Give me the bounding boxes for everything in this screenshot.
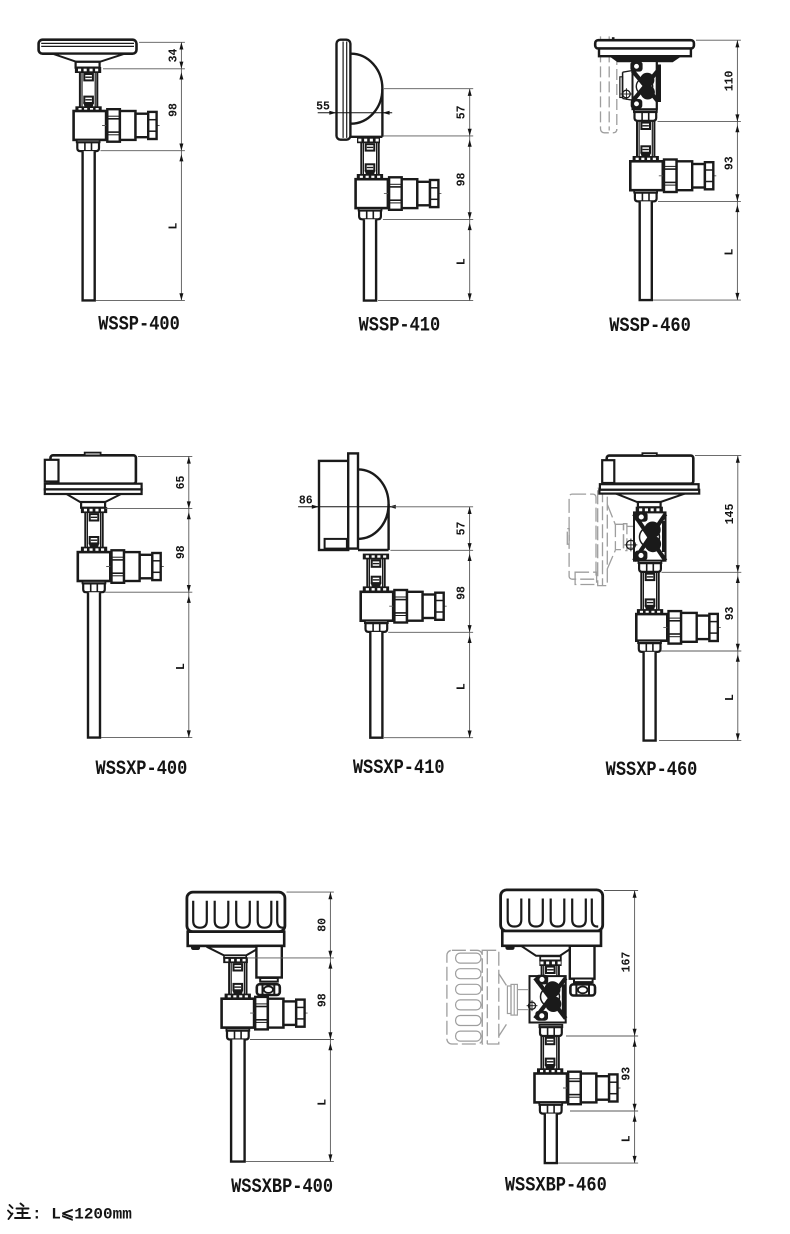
svg-text:98: 98 (456, 586, 469, 600)
svg-text:WSSP-400: WSSP-400 (98, 312, 180, 336)
svg-text:86: 86 (299, 494, 313, 507)
svg-text:57: 57 (456, 105, 469, 119)
svg-text:98: 98 (167, 103, 180, 117)
svg-text:145: 145 (724, 504, 737, 525)
svg-text:L: L (316, 1099, 329, 1106)
svg-text:98: 98 (175, 545, 188, 559)
svg-text:L: L (175, 663, 188, 670)
svg-text:34: 34 (167, 49, 180, 63)
svg-text:93: 93 (621, 1067, 634, 1081)
svg-text:L: L (621, 1135, 634, 1142)
svg-text:57: 57 (456, 522, 469, 536)
svg-text:WSSXBP-460: WSSXBP-460 (505, 1173, 607, 1197)
svg-text:65: 65 (175, 476, 188, 490)
svg-text:L: L (167, 222, 180, 229)
svg-text:93: 93 (723, 156, 736, 170)
svg-text:98: 98 (316, 993, 329, 1007)
svg-text:WSSP-410: WSSP-410 (359, 313, 441, 337)
svg-text:WSSXP-400: WSSXP-400 (96, 756, 188, 780)
svg-text:L: L (456, 258, 469, 265)
svg-text:WSSP-460: WSSP-460 (609, 313, 691, 337)
svg-text:L: L (723, 248, 736, 255)
svg-text:167: 167 (621, 952, 634, 973)
svg-text:80: 80 (316, 918, 329, 932)
svg-text:WSSXBP-400: WSSXBP-400 (231, 1174, 333, 1198)
svg-text:55: 55 (316, 100, 330, 113)
svg-text:93: 93 (724, 607, 737, 621)
svg-text:L: L (724, 694, 737, 701)
svg-text:L: L (456, 683, 469, 690)
svg-text:110: 110 (723, 70, 736, 91)
svg-text:WSSXP-410: WSSXP-410 (353, 755, 445, 779)
svg-text:WSSXP-460: WSSXP-460 (606, 757, 698, 781)
svg-text:98: 98 (456, 173, 469, 187)
svg-text:: L⩽1200mm: : L⩽1200mm (32, 1206, 132, 1224)
